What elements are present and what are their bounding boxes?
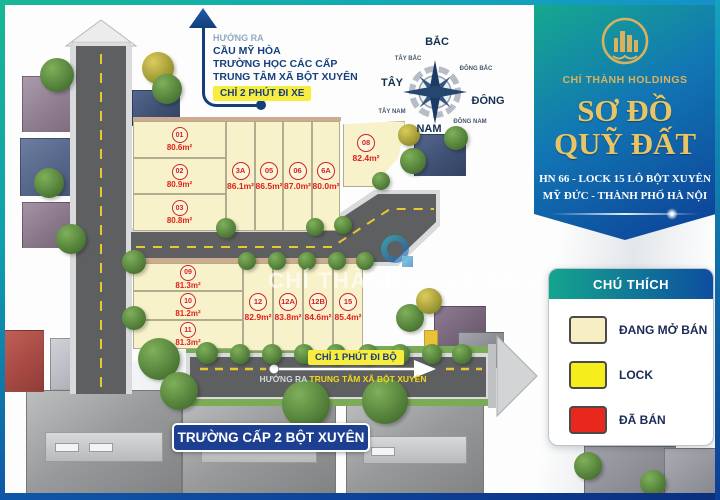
poster-title-line2: QUỸ ĐẤT [554, 127, 696, 160]
walk-direction-prefix: HƯỚNG RA [259, 374, 309, 384]
walk-direction-label: HƯỚNG RA TRUNG TÂM XÃ BỘT XUYÊN [198, 374, 488, 384]
tree-icon [282, 380, 330, 428]
school-building-roof [26, 390, 182, 500]
frame-left [0, 0, 5, 500]
legend-label-open: ĐANG MỞ BÁN [619, 323, 707, 337]
tree-icon [362, 378, 408, 424]
plot-area-label: 80.9m² [167, 181, 192, 189]
plot-number-badge: 6A [317, 162, 335, 180]
tree-icon [452, 344, 472, 364]
plot-10: 10 81.2m² [133, 291, 243, 320]
tree-icon [372, 172, 390, 190]
plot-area-label: 80.0m² [313, 182, 340, 191]
compass-southeast-label: ĐÔNG NAM [453, 119, 486, 125]
legend-label-lock: LOCK [619, 368, 653, 382]
legend-label-sold: ĐÃ BÁN [619, 413, 666, 427]
plot-number-badge: 10 [180, 293, 196, 309]
tree-icon [56, 224, 86, 254]
tree-icon [152, 74, 182, 104]
compass-south-label: NAM [416, 123, 441, 135]
house [50, 338, 114, 390]
plot-area-label: 87.0m² [284, 182, 311, 191]
frame-top [0, 0, 720, 5]
plot-area-label: 82.4m² [353, 154, 380, 163]
tree-icon [216, 218, 236, 238]
tree-icon [122, 250, 146, 274]
plot-12: 12 82.9m² [243, 263, 273, 351]
tree-icon [238, 252, 256, 270]
tree-icon [416, 288, 442, 314]
legend-title: CHÚ THÍCH [549, 269, 713, 299]
compass-northeast-label: ĐÔNG BẮC [460, 66, 493, 72]
legend-swatch-open [569, 316, 607, 344]
plot-02: 02 80.9m² [133, 158, 226, 194]
plot-number-badge: 02 [172, 164, 188, 180]
tree-icon [268, 252, 286, 270]
tree-icon [34, 168, 64, 198]
compass-northwest-label: TÂY BẮC [395, 56, 422, 62]
plot-number-badge: 11 [180, 322, 196, 338]
plot-09: 09 81.3m² [133, 263, 243, 291]
brand-logo-icon [597, 14, 653, 72]
land-map-poster: 01 80.6m² 02 80.9m² 03 80.8m² 3A 86.1m² … [0, 0, 720, 500]
plot-area-label: 81.3m² [175, 282, 200, 290]
compass-east-label: ĐÔNG [472, 95, 505, 107]
plot-number-badge: 06 [289, 162, 307, 180]
direction-note-line: TRƯỜNG HỌC CÁC CẤP [213, 58, 337, 70]
skylight [89, 443, 113, 452]
poster-title-line1: SƠ ĐỒ [554, 94, 696, 127]
tree-icon [306, 218, 324, 236]
plot-number-badge: 09 [180, 265, 196, 281]
tree-icon [328, 252, 346, 270]
walk-time-badge: CHỈ 1 PHÚT ĐI BỘ [308, 350, 404, 365]
direction-arrow-icon [189, 8, 217, 28]
compass-north-label: BẮC [425, 36, 449, 48]
legend-swatch-sold [569, 406, 607, 434]
plot-area-label: 80.8m² [167, 217, 192, 225]
direction-arrow-dot [256, 100, 266, 110]
plot-area-label: 81.2m² [175, 310, 200, 318]
plot-number-badge: 3A [232, 162, 250, 180]
plot-area-label: 86.1m² [227, 182, 254, 191]
tree-icon [334, 216, 352, 234]
house [2, 330, 44, 392]
plot-01: 01 80.6m² [133, 121, 226, 158]
plot-number-badge: 12B [309, 293, 327, 311]
legend-panel: CHÚ THÍCH ĐANG MỞ BÁN LOCK ĐÃ BÁN [548, 268, 714, 446]
watermark-logo-icon [378, 234, 418, 270]
plot-12B: 12B 84.6m² [303, 263, 333, 351]
legend-swatch-lock [569, 361, 607, 389]
plot-number-badge: 15 [339, 293, 357, 311]
plot-number-badge: 12 [249, 293, 267, 311]
direction-arrow-line [202, 28, 205, 90]
tree-icon [160, 372, 198, 410]
walk-direction-target: TRUNG TÂM XÃ BỘT XUYÊN [309, 374, 426, 384]
banner-shine-divider [550, 213, 700, 215]
plot-03: 03 80.8m² [133, 194, 226, 231]
legend-item-open: ĐANG MỞ BÁN [569, 316, 713, 344]
poster-subtitle-line2: MỸ ĐỨC - THÀNH PHỐ HÀ NỘI [539, 188, 711, 205]
plot-area-label: 83.8m² [275, 313, 302, 322]
legend-item-sold: ĐÃ BÁN [569, 406, 713, 434]
plot-area-label: 85.4m² [335, 313, 362, 322]
plot-number-badge: 05 [260, 162, 278, 180]
tree-icon [356, 252, 374, 270]
compass-west-label: TÂY [381, 77, 403, 89]
tree-icon [298, 252, 316, 270]
plot-number-badge: 12A [279, 293, 297, 311]
frame-right [715, 0, 720, 500]
tree-icon [422, 344, 442, 364]
plot-05: 05 86.5m² [255, 121, 283, 231]
direction-note-prefix: HƯỚNG RA [213, 33, 264, 43]
plot-06: 06 87.0m² [283, 121, 312, 231]
plot-number-badge: 08 [357, 134, 375, 152]
direction-note-line: CẦU MỸ HÒA [213, 45, 281, 57]
brand-name: CHÍ THÀNH HOLDINGS [562, 74, 687, 86]
plot-number-badge: 03 [172, 200, 188, 216]
tree-icon [230, 344, 250, 364]
compass-southwest-label: TÂY NAM [378, 109, 405, 115]
tree-icon [574, 452, 602, 480]
skylight [55, 443, 79, 452]
plot-area-label: 81.3m² [175, 339, 200, 347]
tree-icon [40, 58, 74, 92]
frame-bottom [0, 493, 720, 500]
title-ribbon: CHÍ THÀNH HOLDINGS SƠ ĐỒ QUỸ ĐẤT HN 66 -… [534, 4, 716, 240]
plot-area-label: 84.6m² [305, 313, 332, 322]
tree-icon [122, 306, 146, 330]
plot-number-badge: 01 [172, 127, 188, 143]
tree-icon [262, 344, 282, 364]
tree-icon [196, 342, 218, 364]
legend-item-lock: LOCK [569, 361, 713, 389]
tree-icon [400, 148, 426, 174]
skylight [371, 447, 395, 456]
school-name-plate: TRƯỜNG CẤP 2 BỘT XUYÊN [172, 423, 370, 452]
plot-15: 15 85.4m² [333, 263, 363, 351]
plot-area-label: 86.5m² [256, 182, 283, 191]
plot-6A: 6A 80.0m² [312, 121, 340, 231]
direction-note-line: TRUNG TÂM XÃ BỘT XUYÊN [213, 71, 358, 83]
drive-time-badge: CHỈ 2 PHÚT ĐI XE [213, 86, 311, 101]
plot-3A: 3A 86.1m² [226, 121, 255, 231]
poster-subtitle-line1: HN 66 - LOCK 15 LÔ BỘT XUYÊN [539, 171, 711, 188]
plot-12A: 12A 83.8m² [273, 263, 303, 351]
plot-area-label: 80.6m² [167, 144, 192, 152]
plot-area-label: 82.9m² [245, 313, 272, 322]
